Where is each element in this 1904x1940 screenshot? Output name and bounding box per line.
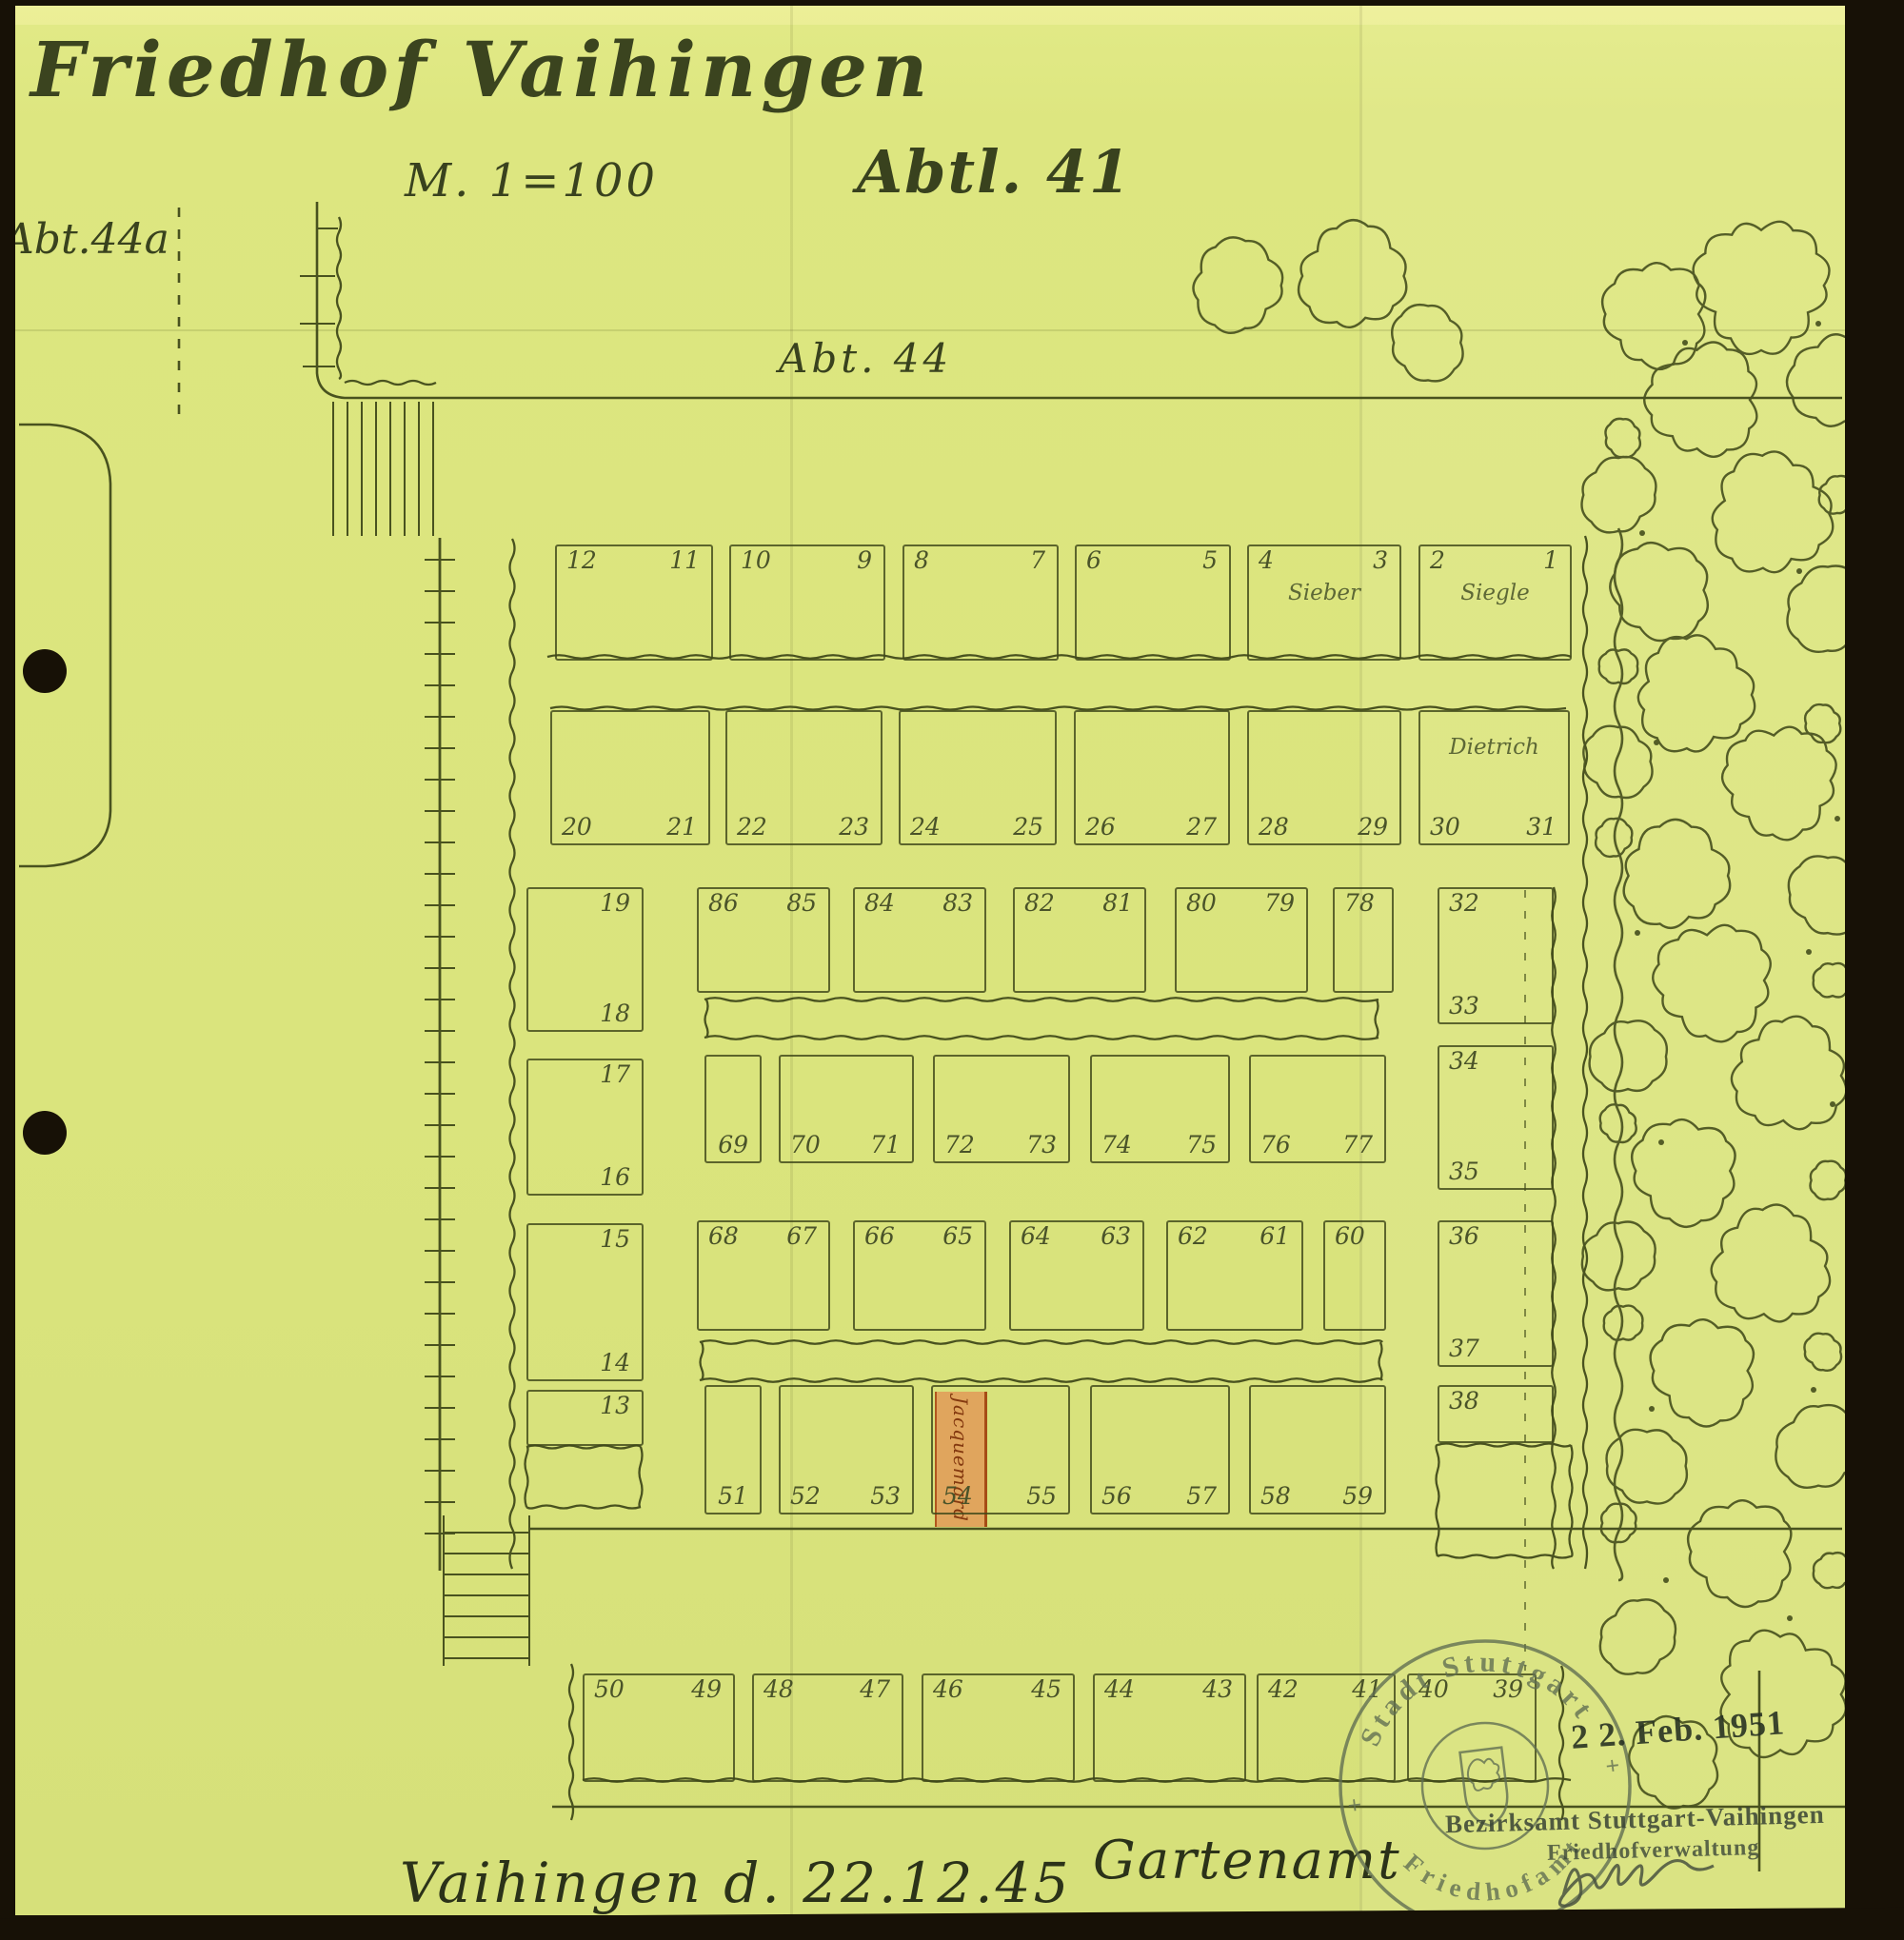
horizontal-crease <box>15 329 1845 331</box>
section-label: Abtl. 41 <box>857 137 1132 207</box>
scan-edge-top <box>0 0 1904 6</box>
scan-edge-left <box>0 0 15 1940</box>
neighbor-section-top-label: Abt. 44 <box>779 335 952 382</box>
scale-label: M. 1=100 <box>405 154 658 208</box>
page-title: Friedhof Vaihingen <box>30 25 932 114</box>
paper-tone-patch <box>1359 6 1845 1915</box>
scan-edge-right <box>1845 0 1904 1940</box>
highlighted-plot-owner: Jacquemard <box>949 1396 972 1522</box>
vertical-crease <box>790 6 793 1915</box>
punch-hole <box>23 1111 67 1155</box>
vertical-crease <box>1359 6 1362 1915</box>
scanned-cemetery-plan: { "header": { "title": "Friedhof Vaihing… <box>0 0 1904 1940</box>
highlighted-plot: Jacquemard <box>935 1392 987 1527</box>
footer-place-date: Vaihingen d. 22.12.45 <box>400 1851 1071 1915</box>
neighbor-section-left-label: Abt.44a <box>4 215 169 264</box>
footer-office: Gartenamt <box>1093 1830 1401 1891</box>
punch-hole <box>23 649 67 693</box>
